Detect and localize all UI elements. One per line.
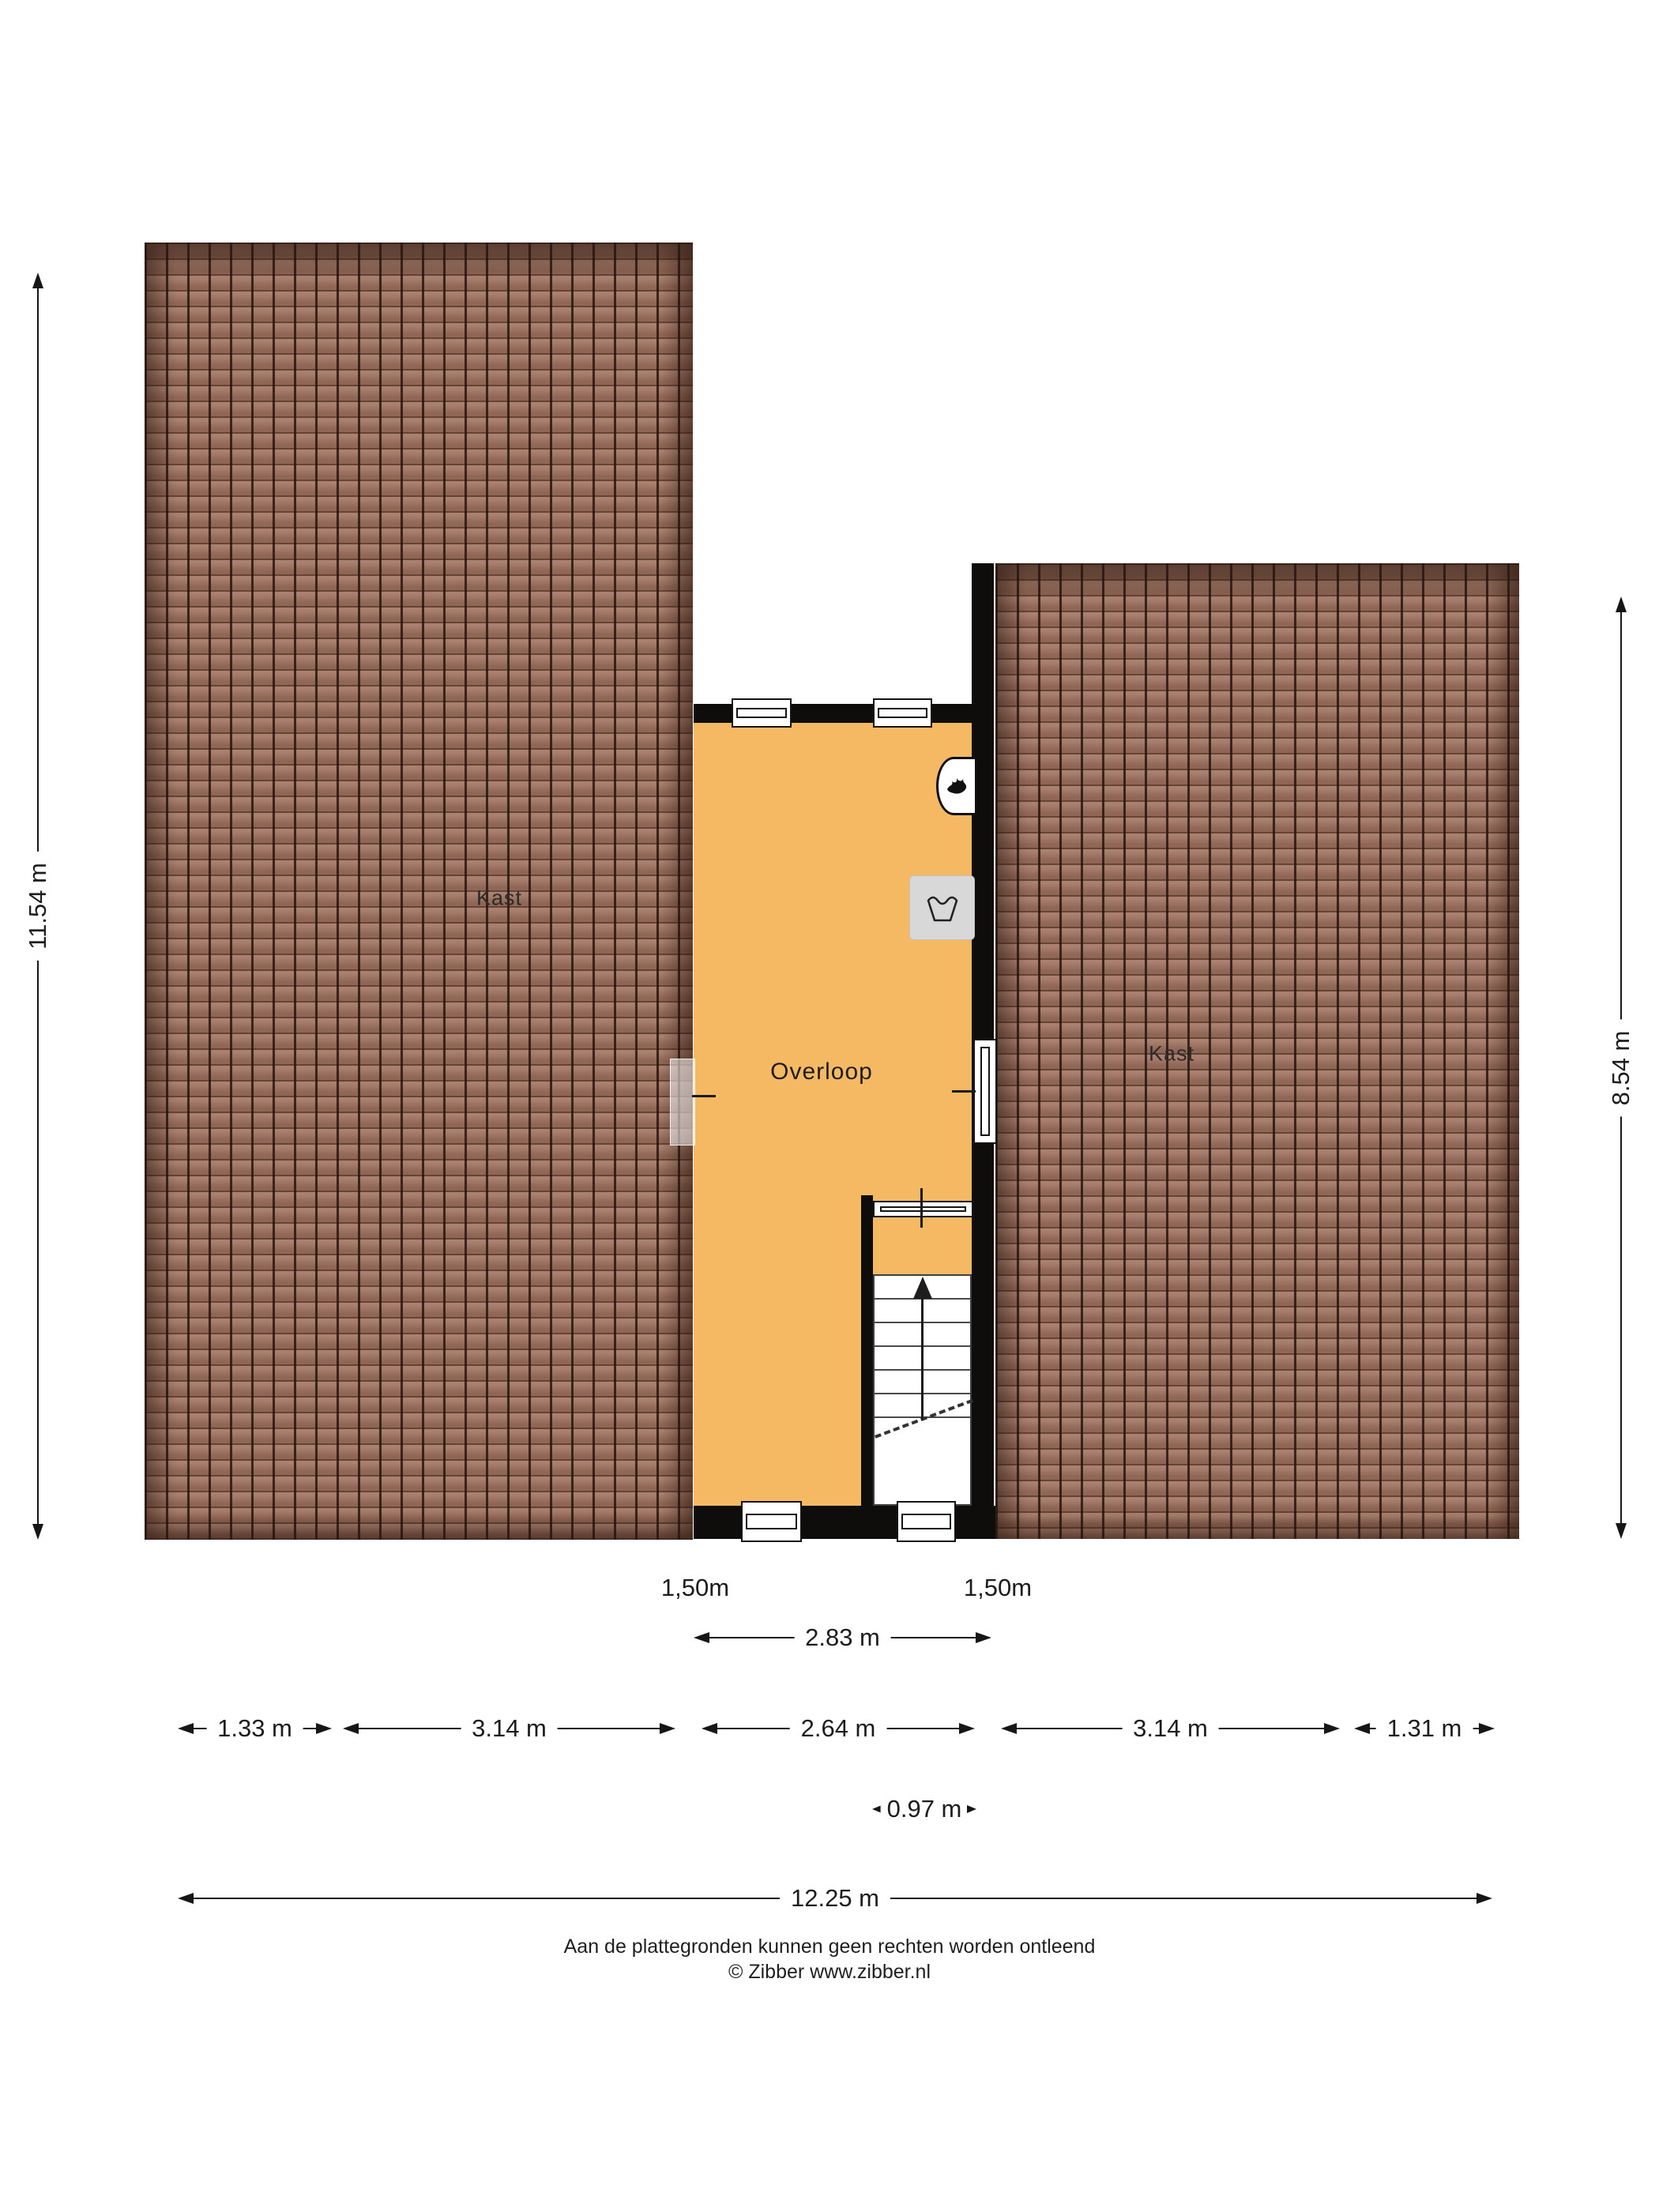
dimension-total-width: 12.25 m	[178, 1884, 1492, 1913]
room-label-kast-right: Kast	[1149, 1042, 1194, 1066]
door-right-kast	[973, 1039, 997, 1144]
label-window-left-width: 1,50m	[661, 1574, 729, 1602]
door-right-tick	[952, 1090, 976, 1093]
dimension-height-left: 11.54 m	[24, 273, 52, 1540]
label-window-right-width: 1,50m	[964, 1574, 1032, 1602]
room-label-overloop: Overloop	[770, 1059, 873, 1085]
wall-stairwell	[861, 1195, 873, 1539]
dimension-seg-4: 3.14 m	[1001, 1714, 1340, 1743]
dimension-height-right: 8.54 m	[1607, 596, 1635, 1539]
door-stairs-tick	[920, 1188, 923, 1228]
up-arrow-head-icon	[913, 1277, 932, 1299]
dimension-label: 2.64 m	[790, 1714, 887, 1743]
door-left-kast	[670, 1059, 695, 1145]
door-left-tick	[692, 1095, 716, 1097]
dimension-label: 11.54 m	[24, 852, 52, 961]
room-label-kast-left: Kast	[476, 886, 522, 911]
dimension-label: 2.83 m	[794, 1623, 891, 1652]
roof-right	[995, 563, 1519, 1539]
flame-icon	[944, 775, 969, 797]
dimension-seg-1: 1.33 m	[178, 1714, 332, 1743]
window-bottom-left	[741, 1501, 802, 1542]
dimension-label: 8.54 m	[1607, 1019, 1635, 1116]
dimension-seg-2: 3.14 m	[343, 1714, 675, 1743]
roof-left	[145, 243, 693, 1540]
door-stairs	[873, 1201, 973, 1217]
boiler-unit	[936, 757, 977, 815]
window-bottom-right	[897, 1501, 956, 1542]
dimension-label: 0.97 m	[881, 1795, 969, 1823]
dimension-seg-3: 2.64 m	[702, 1714, 975, 1743]
dimension-seg-5: 1.31 m	[1354, 1714, 1495, 1743]
dimension-label: 12.25 m	[780, 1884, 890, 1913]
laundry-icon	[924, 892, 961, 924]
window-top-right	[873, 698, 932, 728]
dimension-label: 3.14 m	[461, 1714, 558, 1743]
washing-machine	[909, 875, 975, 940]
window-top-left	[732, 698, 792, 728]
copyright-text: © Zibber www.zibber.nl	[0, 1961, 1659, 1984]
dimension-stairs-width: 0.97 m	[872, 1795, 976, 1823]
dimension-label: 3.14 m	[1122, 1714, 1219, 1743]
dimension-label: 1.31 m	[1376, 1714, 1473, 1743]
dimension-overloop-width: 2.83 m	[694, 1623, 991, 1652]
dimension-label: 1.33 m	[206, 1714, 303, 1743]
disclaimer-text: Aan de plattegronden kunnen geen rechten…	[0, 1935, 1659, 1958]
up-arrow-icon	[921, 1296, 924, 1420]
floor-plan: Kast Kast Overloop 11.54 m 8.54 m 1,50m …	[0, 0, 1659, 2212]
